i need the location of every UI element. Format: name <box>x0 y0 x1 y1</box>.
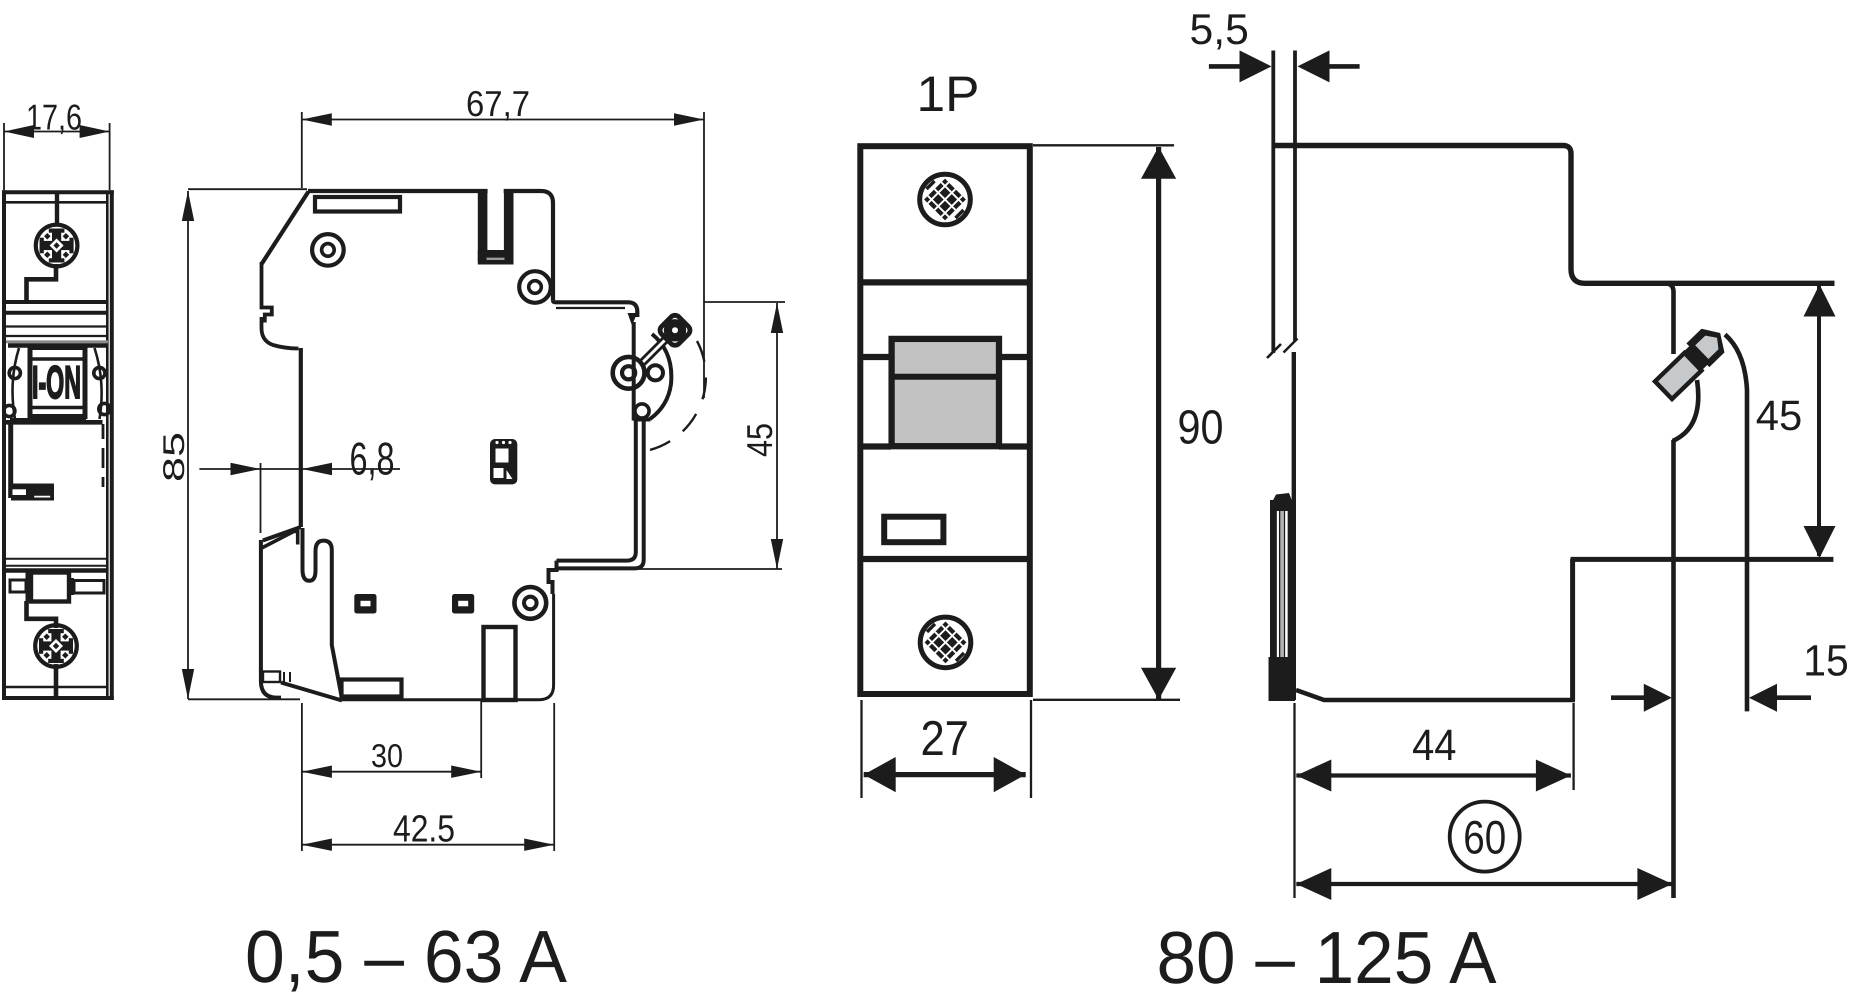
svg-text:60: 60 <box>1463 811 1506 864</box>
svg-text:45: 45 <box>1756 393 1803 440</box>
svg-text:80 – 125 A: 80 – 125 A <box>1157 916 1498 998</box>
svg-text:1P: 1P <box>917 66 980 122</box>
svg-text:27: 27 <box>920 712 969 766</box>
svg-text:15: 15 <box>1803 637 1849 686</box>
svg-text:45: 45 <box>739 423 780 457</box>
svg-text:I-ON: I-ON <box>32 356 81 408</box>
svg-text:90: 90 <box>1178 402 1224 455</box>
svg-text:30: 30 <box>371 737 403 774</box>
svg-text:5,5: 5,5 <box>1190 6 1249 54</box>
svg-text:0,5 – 63 A: 0,5 – 63 A <box>245 915 568 998</box>
svg-text:85: 85 <box>158 432 191 482</box>
svg-text:67,7: 67,7 <box>466 83 530 124</box>
svg-text:6,8: 6,8 <box>350 433 395 485</box>
svg-text:44: 44 <box>1412 721 1456 770</box>
